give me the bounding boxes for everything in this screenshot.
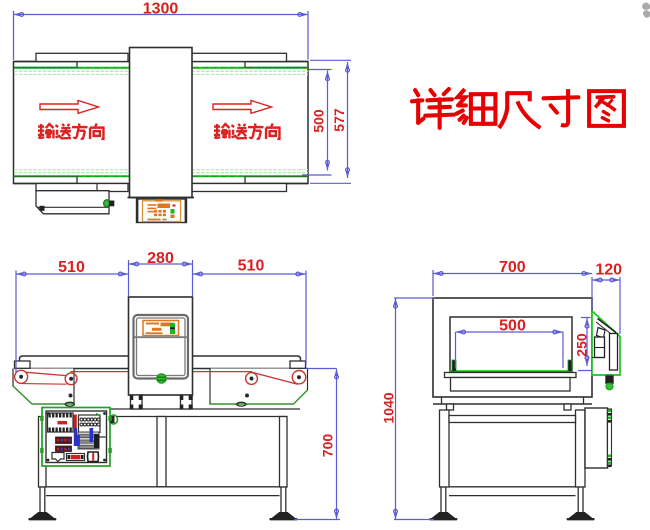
svg-text:280: 280 <box>147 250 174 267</box>
svg-text:700: 700 <box>499 259 526 276</box>
svg-text:120: 120 <box>595 262 622 279</box>
svg-text:577: 577 <box>331 108 347 132</box>
svg-text:250: 250 <box>574 333 590 357</box>
svg-text:500: 500 <box>310 109 326 133</box>
svg-text:1300: 1300 <box>143 1 179 18</box>
svg-text:1040: 1040 <box>380 392 396 423</box>
svg-text:700: 700 <box>319 434 335 458</box>
svg-text:510: 510 <box>238 258 265 275</box>
svg-text:500: 500 <box>499 318 526 335</box>
svg-text:510: 510 <box>58 259 85 276</box>
